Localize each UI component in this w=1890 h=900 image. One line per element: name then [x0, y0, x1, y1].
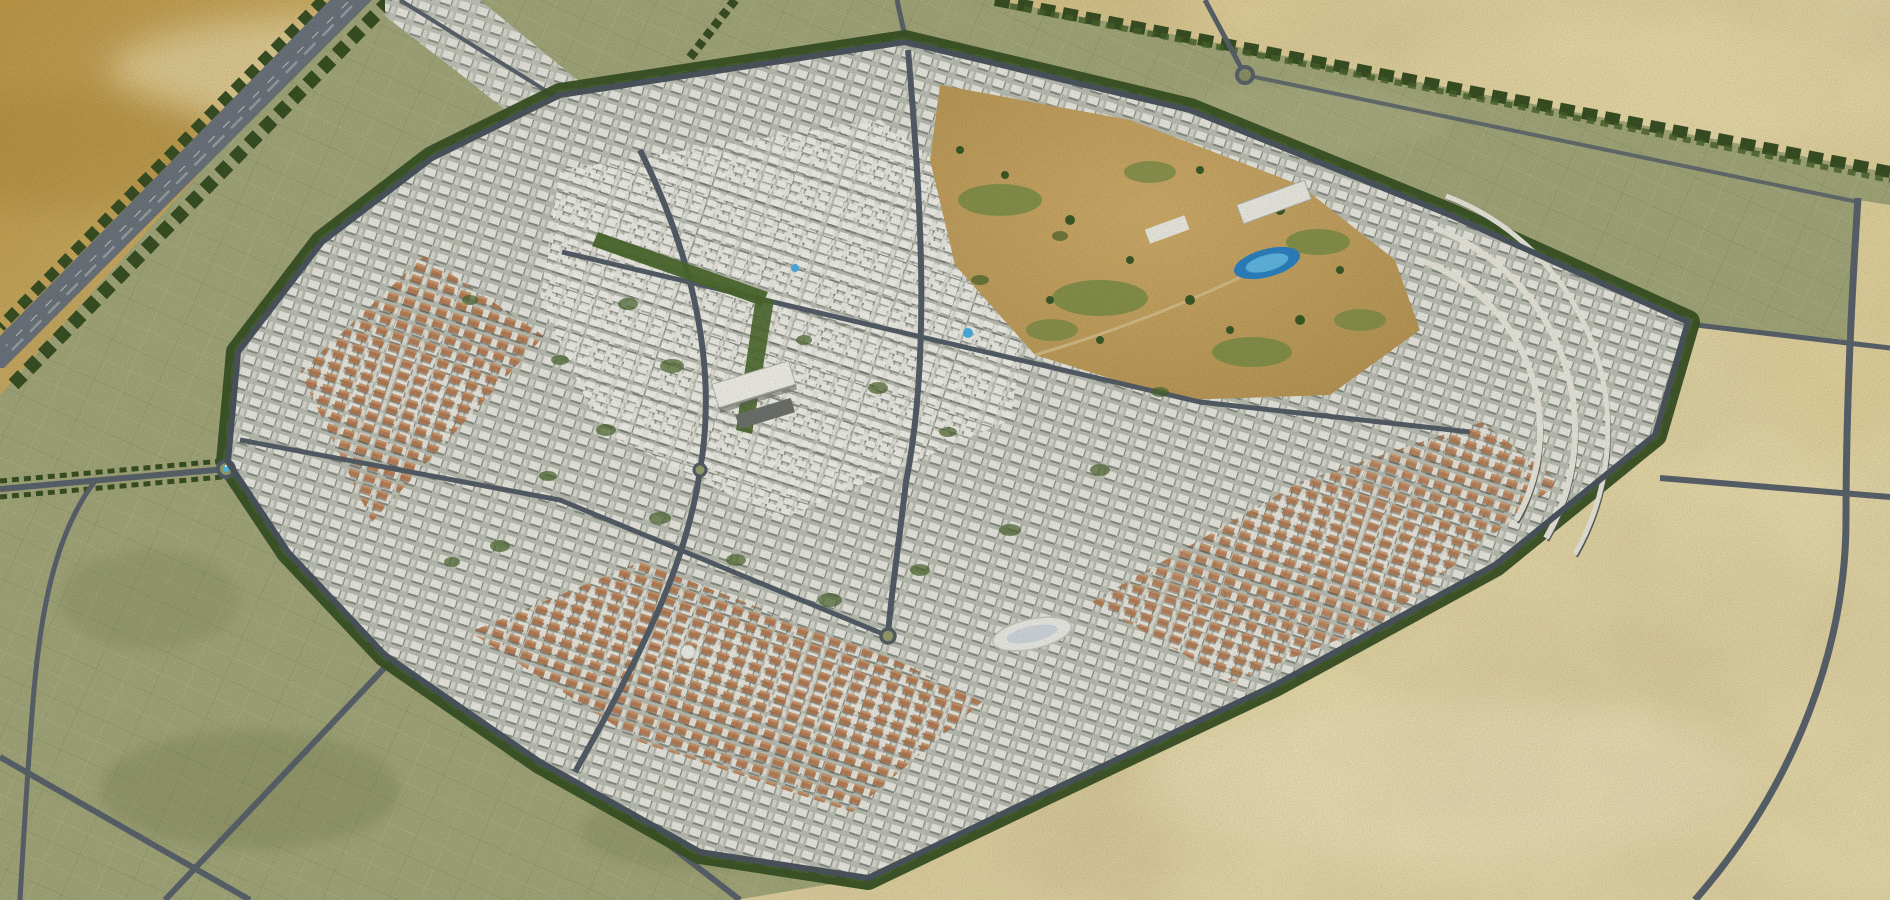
scene-root — [0, 0, 1890, 900]
render-grain — [0, 0, 1890, 900]
scene-svg — [0, 0, 1890, 900]
masterplan-render-stage — [0, 0, 1890, 900]
